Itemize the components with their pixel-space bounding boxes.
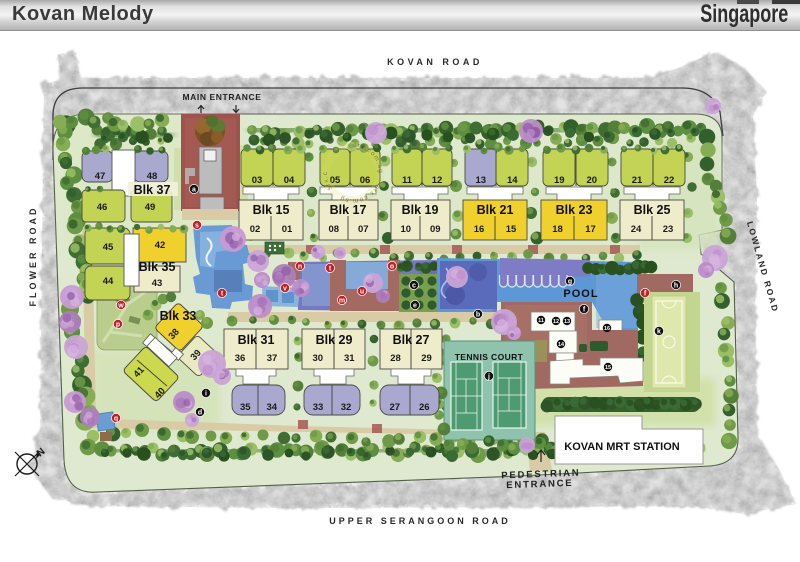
svg-text:KOVAN ROAD: KOVAN ROAD [387, 57, 483, 67]
svg-text:43: 43 [152, 278, 163, 289]
svg-text:UPPER SERANGOON ROAD: UPPER SERANGOON ROAD [329, 516, 511, 526]
svg-text:15: 15 [506, 224, 517, 235]
svg-text:24: 24 [631, 224, 642, 235]
svg-text:20: 20 [586, 175, 597, 186]
svg-text:09: 09 [430, 224, 441, 235]
svg-text:14: 14 [507, 175, 518, 186]
svg-text:13: 13 [475, 175, 486, 186]
svg-text:45: 45 [103, 242, 114, 253]
svg-text:Blk 35: Blk 35 [139, 260, 176, 274]
svg-text:s: s [195, 223, 199, 230]
svg-text:48: 48 [147, 171, 158, 182]
svg-text:12: 12 [553, 319, 559, 325]
svg-text:KOVAN MRT STATION: KOVAN MRT STATION [564, 441, 680, 453]
svg-text:TENNIS COURT: TENNIS COURT [455, 352, 524, 362]
svg-text:16: 16 [474, 224, 485, 235]
svg-text:q: q [114, 416, 118, 423]
svg-text:Blk 33: Blk 33 [160, 309, 197, 323]
svg-text:d: d [198, 410, 202, 417]
svg-text:30: 30 [312, 353, 323, 364]
svg-text:ENTRANCE: ENTRANCE [506, 478, 574, 491]
svg-text:03: 03 [252, 175, 263, 186]
svg-text:FLOWER ROAD: FLOWER ROAD [28, 206, 38, 307]
svg-text:49: 49 [145, 202, 156, 213]
svg-text:Blk 37: Blk 37 [134, 183, 171, 197]
svg-text:18: 18 [552, 224, 563, 235]
svg-text:h: h [674, 283, 678, 290]
svg-text:13: 13 [564, 319, 570, 325]
svg-text:02: 02 [250, 224, 261, 235]
svg-text:Blk 17: Blk 17 [330, 203, 367, 217]
svg-text:22: 22 [664, 175, 675, 186]
svg-text:11: 11 [402, 175, 413, 186]
svg-text:POOL: POOL [563, 288, 598, 300]
svg-text:Blk 29: Blk 29 [316, 333, 353, 347]
svg-text:34: 34 [266, 402, 277, 413]
svg-text:17: 17 [585, 224, 596, 235]
svg-text:27: 27 [389, 402, 400, 413]
svg-text:c: c [412, 283, 416, 290]
svg-text:28: 28 [390, 353, 401, 364]
svg-text:33: 33 [313, 402, 324, 413]
svg-text:32: 32 [341, 402, 352, 413]
svg-text:06: 06 [360, 175, 371, 186]
svg-text:Blk 23: Blk 23 [556, 203, 593, 217]
svg-text:19: 19 [554, 175, 565, 186]
svg-text:k: k [657, 329, 661, 336]
svg-text:29: 29 [421, 353, 432, 364]
svg-text:14: 14 [558, 342, 565, 348]
svg-text:n: n [298, 264, 302, 271]
svg-text:44: 44 [103, 276, 114, 287]
svg-text:Blk 21: Blk 21 [477, 203, 514, 217]
svg-text:01: 01 [282, 224, 293, 235]
svg-text:MAIN ENTRANCE: MAIN ENTRANCE [182, 92, 261, 102]
svg-text:o: o [390, 264, 394, 271]
svg-text:12: 12 [432, 175, 443, 186]
svg-text:42: 42 [155, 240, 166, 251]
svg-text:u: u [360, 289, 364, 296]
svg-text:21: 21 [632, 175, 643, 186]
svg-text:e: e [413, 303, 417, 310]
svg-text:07: 07 [358, 224, 369, 235]
svg-text:a: a [192, 187, 196, 194]
svg-text:g: g [568, 279, 572, 286]
svg-text:47: 47 [95, 171, 106, 182]
svg-text:Blk 25: Blk 25 [634, 203, 671, 217]
svg-text:16: 16 [604, 326, 610, 332]
svg-text:b: b [476, 312, 480, 319]
svg-text:m: m [339, 298, 345, 305]
svg-text:v: v [283, 286, 287, 293]
svg-text:10: 10 [400, 224, 411, 235]
svg-text:37: 37 [267, 353, 278, 364]
svg-text:p: p [116, 322, 120, 329]
svg-text:i: i [205, 391, 207, 398]
svg-text:Blk 27: Blk 27 [393, 333, 430, 347]
svg-text:Blk 19: Blk 19 [402, 203, 439, 217]
svg-text:08: 08 [328, 224, 339, 235]
svg-text:j: j [487, 374, 490, 381]
svg-text:36: 36 [235, 353, 246, 364]
svg-text:15: 15 [605, 365, 611, 371]
svg-text:04: 04 [284, 175, 295, 186]
svg-text:Blk 31: Blk 31 [238, 333, 275, 347]
svg-text:w: w [117, 303, 124, 310]
svg-text:26: 26 [419, 402, 430, 413]
svg-text:Blk 15: Blk 15 [253, 203, 290, 217]
svg-text:11: 11 [538, 318, 544, 324]
svg-text:35: 35 [240, 402, 251, 413]
svg-text:23: 23 [663, 224, 674, 235]
svg-text:31: 31 [344, 353, 355, 364]
svg-text:46: 46 [97, 202, 108, 213]
